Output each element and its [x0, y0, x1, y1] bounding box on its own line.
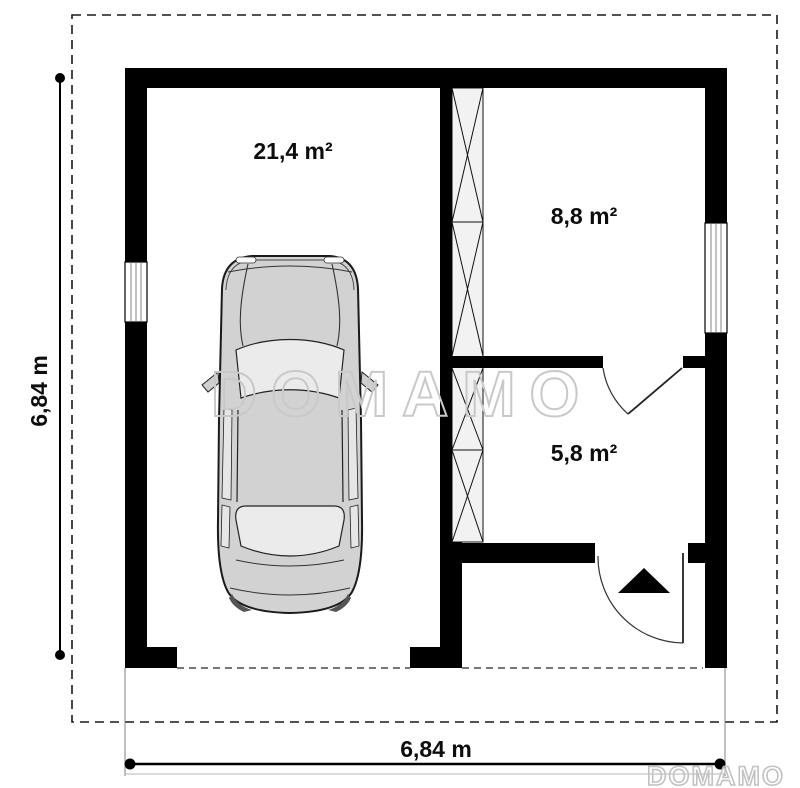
wall-right-lower: [705, 333, 727, 668]
dimension-left: 6,84 m: [26, 73, 65, 660]
wall-between-rooms-stub: [683, 356, 705, 368]
wall-top: [125, 68, 727, 88]
wall-lower-room-bottom-stub: [688, 543, 705, 563]
wall-right-upper: [705, 88, 727, 223]
wall-interior-vertical: [440, 88, 452, 542]
wall-left-lower: [125, 322, 147, 647]
car-top-view: [202, 256, 378, 613]
lower-room-area-label: 5,8 m²: [551, 440, 618, 466]
wall-garage-door-right-foot: [410, 647, 462, 668]
window-left: [125, 262, 147, 322]
window-right: [705, 223, 727, 333]
wall-left-upper: [125, 88, 147, 262]
wall-left-foot: [125, 647, 177, 668]
wall-lower-room-bottom: [440, 543, 595, 563]
upper-room-area-label: 8,8 m²: [551, 203, 618, 229]
watermark-corner: DOMAMO: [647, 761, 785, 788]
floor-plan-canvas: 6,84 m 6,84 m 21,4 m² 8,8 m² 5,8 m² DOMA…: [0, 0, 800, 788]
door-interior: [603, 368, 682, 414]
garage-area-label: 21,4 m²: [253, 138, 333, 164]
door-entrance: [598, 553, 683, 643]
watermark-center: DOMAMO: [211, 358, 594, 430]
dimension-width-label: 6,84 m: [400, 736, 472, 762]
entrance-arrow-icon: [618, 568, 670, 593]
hatched-wall-column: [452, 88, 483, 542]
floor-plan-drawing: 6,84 m 6,84 m 21,4 m² 8,8 m² 5,8 m² DOMA…: [0, 0, 800, 788]
dimension-height-label: 6,84 m: [26, 355, 52, 427]
